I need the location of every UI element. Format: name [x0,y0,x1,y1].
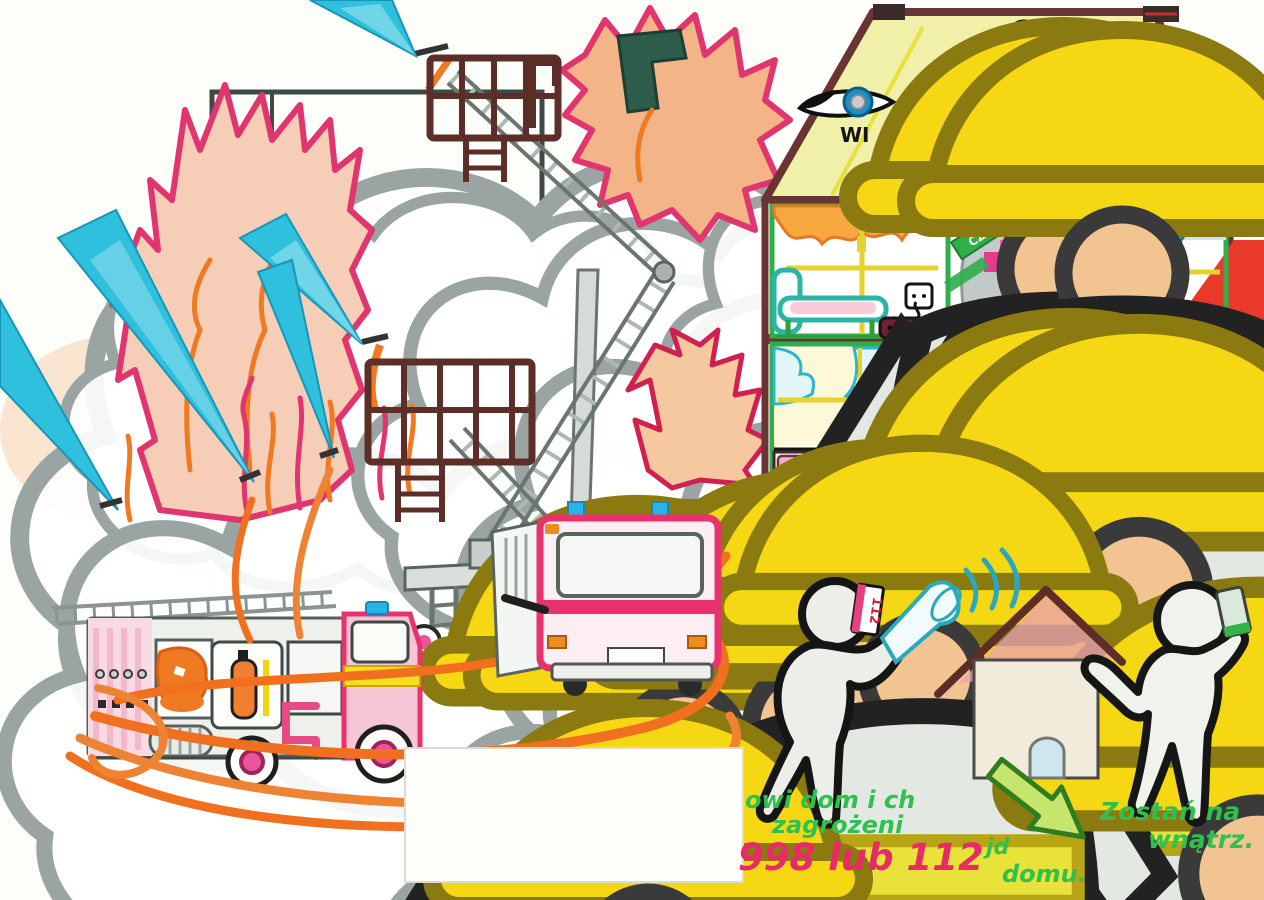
stay-text-line2: wnątrz. [1148,825,1254,854]
exit-text-line1: jd [983,835,1010,860]
report-text-line2: zagrożeni [771,811,904,839]
beacon-light [366,602,388,614]
chimney [873,4,905,20]
report-text-line1: owi dom i ch [745,786,915,814]
children-drawing-fire-safety: CO WI A' X X ŁY H' I N X C Z [0,0,1264,900]
stay-text-line1: Zostań na [1099,797,1240,826]
door [1030,738,1064,778]
fire-extinguisher-icon [232,660,256,718]
emergency-numbers: 998 lub 112 [738,836,984,879]
drawing-svg: CO WI A' X X ŁY H' I N X C Z [0,0,1264,900]
blank-label-box [405,748,743,882]
exit-text-line2: domu. [1002,860,1087,888]
hose-compartment [156,640,212,718]
power-outlet-icon [906,284,932,308]
